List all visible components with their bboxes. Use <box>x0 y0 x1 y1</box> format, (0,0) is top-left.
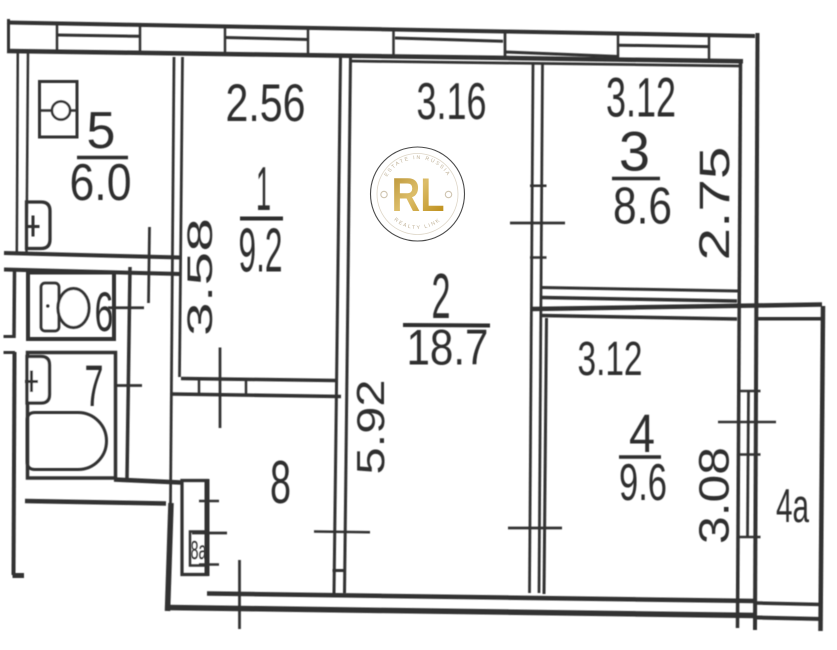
svg-text:8: 8 <box>270 449 291 516</box>
svg-text:RL: RL <box>392 168 445 221</box>
svg-text:7: 7 <box>85 354 104 419</box>
svg-text:6: 6 <box>95 280 114 343</box>
svg-text:8.6: 8.6 <box>613 178 672 236</box>
svg-text:3: 3 <box>619 120 650 183</box>
svg-text:2.75: 2.75 <box>691 147 739 261</box>
svg-text:3.58: 3.58 <box>181 218 220 336</box>
svg-text:9.2: 9.2 <box>239 217 283 286</box>
svg-text:1: 1 <box>256 155 271 224</box>
svg-text:5: 5 <box>87 102 116 160</box>
svg-text:8a: 8a <box>191 535 207 565</box>
svg-text:2.56: 2.56 <box>226 74 306 133</box>
svg-text:5.92: 5.92 <box>350 380 393 475</box>
svg-text:6.0: 6.0 <box>70 154 132 212</box>
svg-text:18.7: 18.7 <box>407 320 489 376</box>
svg-text:3.16: 3.16 <box>417 73 487 131</box>
svg-text:9.6: 9.6 <box>619 454 667 512</box>
svg-text:3.12: 3.12 <box>578 333 643 386</box>
svg-text:4a: 4a <box>776 479 810 532</box>
svg-text:3.08: 3.08 <box>691 447 739 544</box>
